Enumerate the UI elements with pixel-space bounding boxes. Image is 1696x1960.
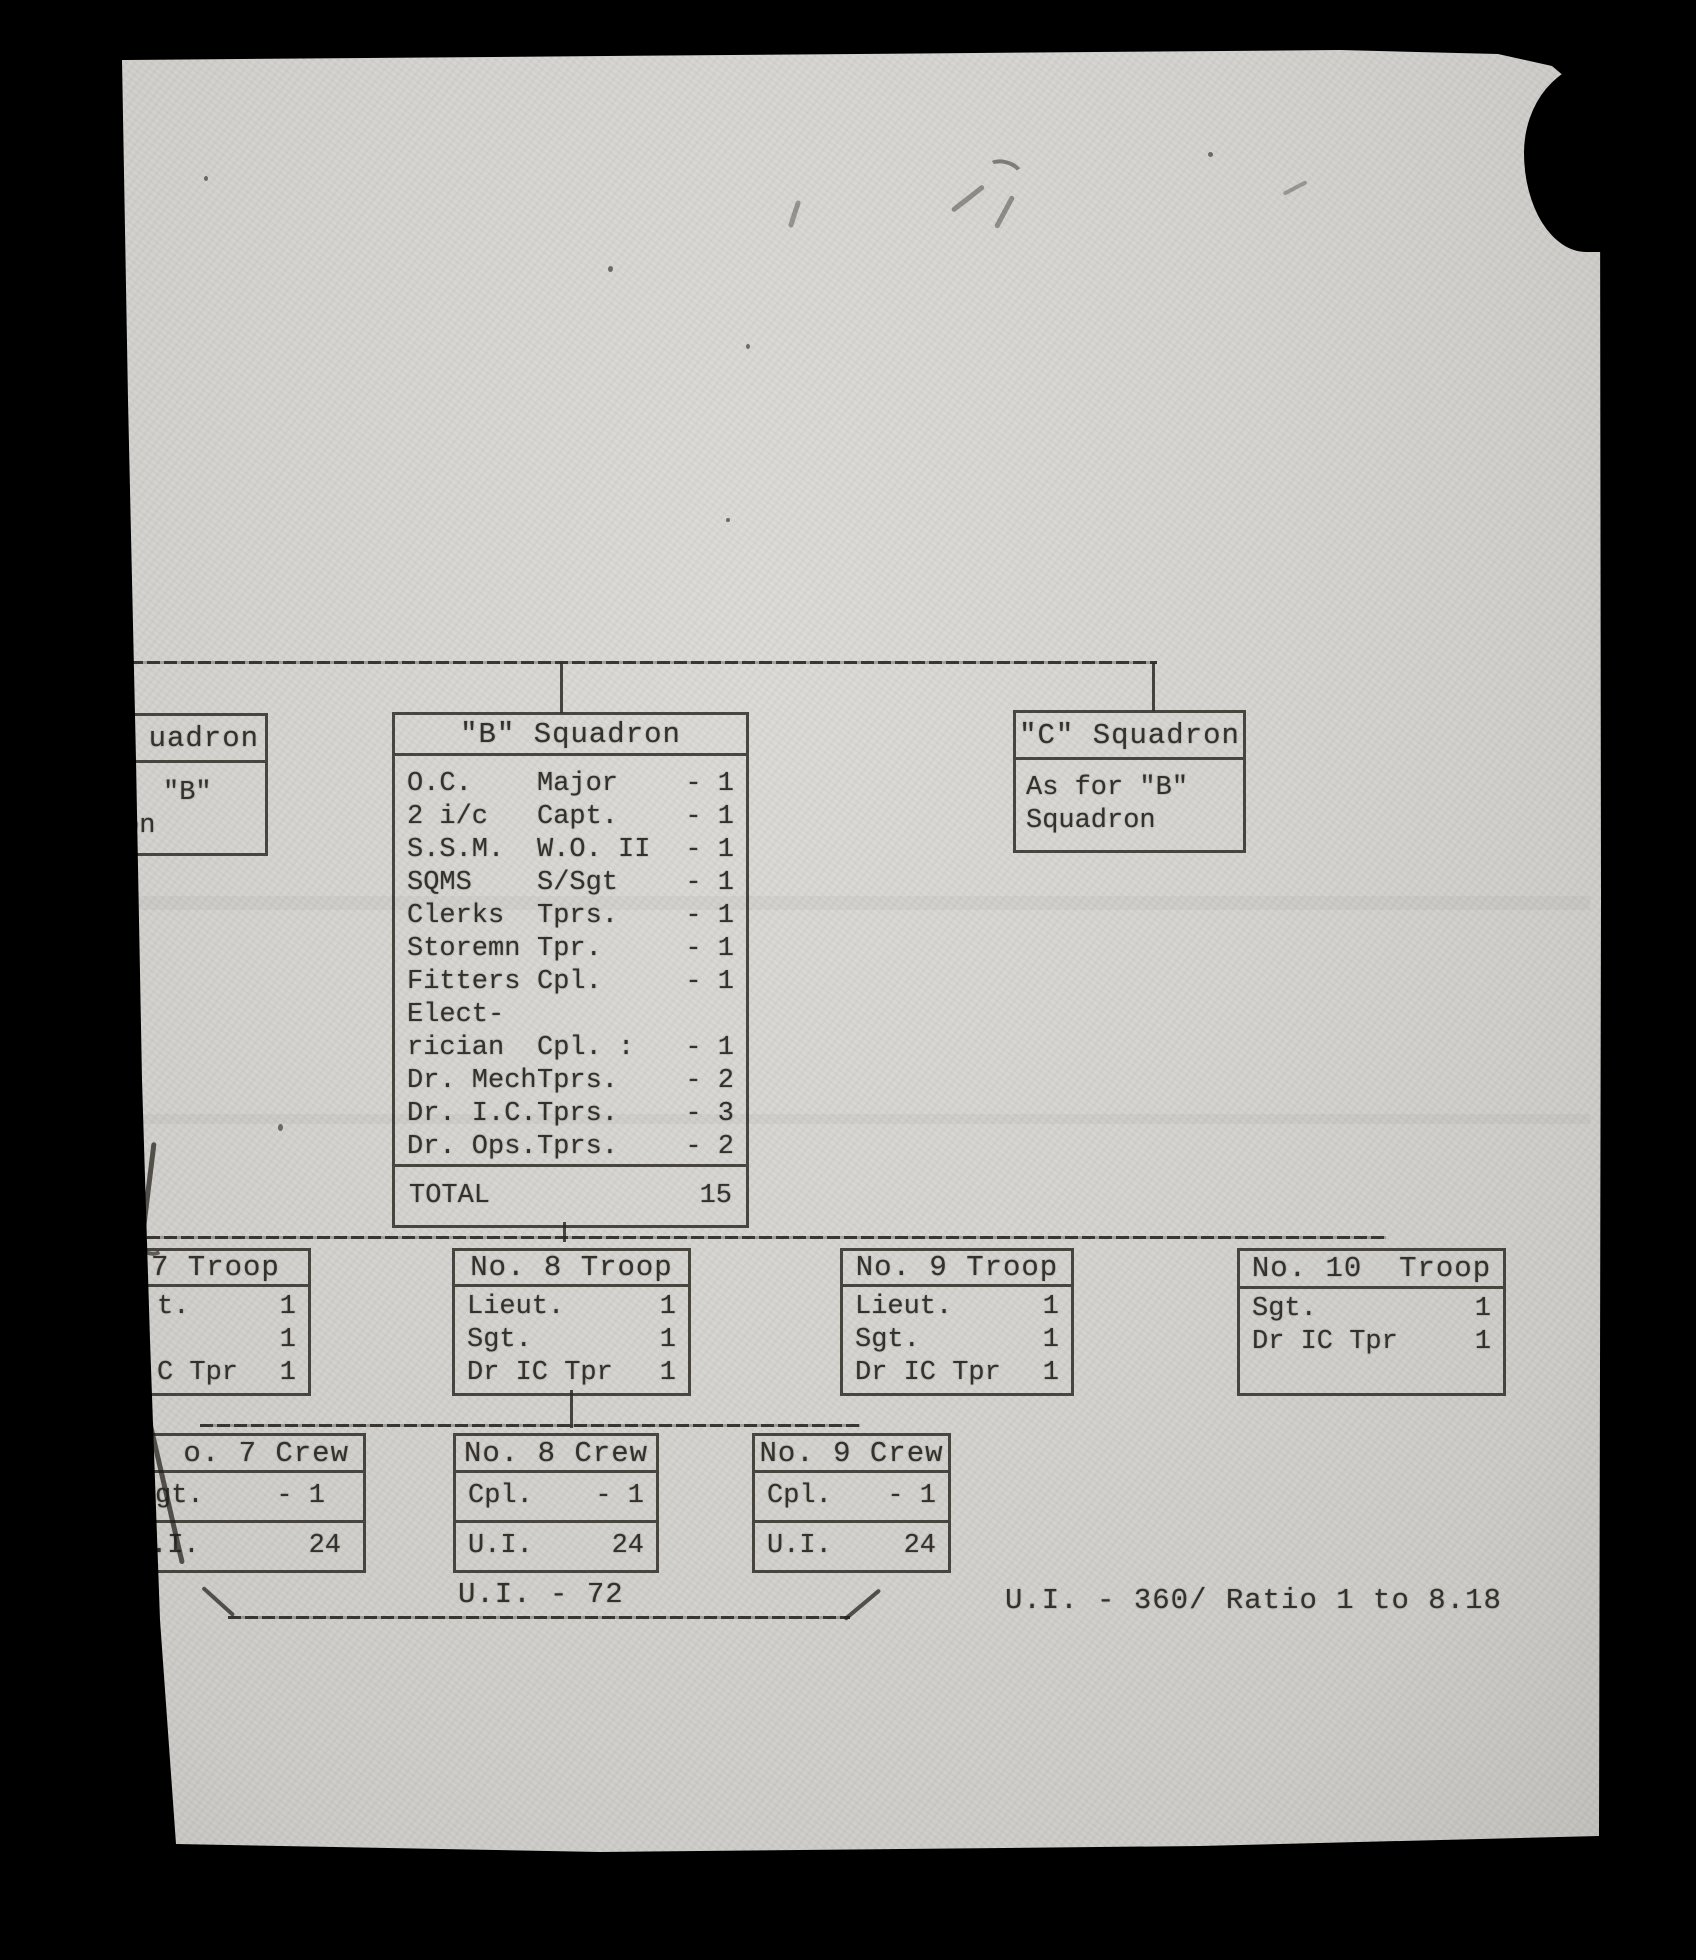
- crew-ui-row: .I. 24: [89, 1523, 363, 1570]
- personnel-row: Storemn Tpr. - 1: [395, 933, 746, 966]
- role-label: Dr. Mech: [407, 1065, 537, 1098]
- connector-top-line: [96, 661, 1157, 664]
- crew-person-count: - 1: [595, 1480, 644, 1513]
- squadron-c-title: "C" Squadron: [1019, 719, 1240, 752]
- count-value: [672, 999, 734, 1032]
- crew-person-row: gt. - 1: [89, 1473, 363, 1523]
- paper-sheet: uadron "B" on "B" Squadron O.C. Major - …: [0, 0, 1696, 1960]
- connector-troop8-to-crews: [570, 1390, 573, 1428]
- brace-left-end: [201, 1586, 235, 1617]
- rank-label: Tprs.: [537, 1065, 672, 1098]
- scanned-org-chart-page: uadron "B" on "B" Squadron O.C. Major - …: [0, 0, 1696, 1960]
- troop-role-label: t.: [157, 1291, 189, 1324]
- connector-troop-line: [96, 1236, 1386, 1239]
- squadron-b-box: "B" Squadron O.C. Major - 1 2 i/c Capt. …: [392, 712, 749, 1228]
- ink-mark: [788, 200, 801, 228]
- troop-count-value: 1: [1475, 1326, 1491, 1359]
- troop-7-box: 7 Troop t. 1 1 C Tpr 1: [86, 1248, 311, 1396]
- troop-count-value: 1: [1475, 1293, 1491, 1326]
- role-label: O.C.: [407, 768, 537, 801]
- troop-8-box: No. 8 Troop Lieut. 1 Sgt. 1 Dr IC Tpr 1: [452, 1248, 691, 1396]
- troop-role-label: Lieut.: [467, 1291, 564, 1324]
- crew-person-label: Cpl.: [767, 1480, 832, 1513]
- squadron-a-line1: "B": [89, 777, 265, 810]
- squadron-c-line1: As for "B": [1026, 772, 1243, 805]
- ink-mark: [994, 195, 1015, 229]
- crew-7-box: o. 7 Crew gt. - 1 .I. 24: [86, 1433, 366, 1573]
- troop-10-box: No. 10 Troop Sgt. 1 Dr IC Tpr 1: [1237, 1248, 1506, 1396]
- crew-person-count: - 1: [887, 1480, 936, 1513]
- troop-count-value: 1: [280, 1324, 296, 1357]
- crew-person-row: Cpl. - 1: [456, 1473, 656, 1523]
- ink-mark: [983, 155, 1026, 188]
- crew-ui-label: U.I.: [767, 1530, 832, 1563]
- squadron-a-box: uadron "B" on: [86, 713, 268, 856]
- rank-label: Tpr.: [537, 933, 672, 966]
- total-value: 15: [700, 1180, 732, 1213]
- troop-10-title: No. 10 Troop: [1252, 1252, 1491, 1285]
- troop-role-label: Sgt.: [1252, 1293, 1317, 1326]
- squadron-a-line2: on: [89, 810, 265, 843]
- squadron-c-box: "C" Squadron As for "B" Squadron: [1013, 710, 1246, 853]
- crew-total-label: U.I. - 72: [458, 1578, 624, 1611]
- ink-mark: [951, 184, 986, 213]
- troop-count-value: 1: [660, 1291, 676, 1324]
- troop-role-label: Dr IC Tpr: [855, 1357, 1001, 1390]
- squadron-b-title: "B" Squadron: [460, 718, 681, 751]
- paper-crease: [130, 896, 1590, 910]
- troop-count-value: 1: [280, 1291, 296, 1324]
- troop-row: t. 1: [89, 1291, 308, 1324]
- troop-row: Lieut. 1: [455, 1291, 688, 1324]
- troop-role-label: Dr IC Tpr: [467, 1357, 613, 1390]
- count-value: - 1: [672, 933, 734, 966]
- troop-count-value: 1: [280, 1357, 296, 1390]
- count-value: - 2: [672, 1131, 734, 1164]
- personnel-row: rician Cpl. : - 1: [395, 1032, 746, 1065]
- total-label: TOTAL: [409, 1180, 490, 1213]
- rank-label: Cpl.: [537, 966, 672, 999]
- troop-row: Dr IC Tpr 1: [843, 1357, 1071, 1390]
- crew-9-title: No. 9 Crew: [759, 1437, 943, 1470]
- personnel-row: Dr. Mech Tprs. - 2: [395, 1065, 746, 1098]
- rank-label: Cpl. :: [537, 1032, 672, 1065]
- squadron-b-total-row: TOTAL 15: [395, 1164, 746, 1225]
- role-label: Dr. Ops.: [407, 1131, 537, 1164]
- role-label: 2 i/c: [407, 801, 537, 834]
- troop-row: Sgt. 1: [455, 1324, 688, 1357]
- rank-label: Tprs.: [537, 1131, 672, 1164]
- count-value: - 2: [672, 1065, 734, 1098]
- personnel-row: 2 i/c Capt. - 1: [395, 801, 746, 834]
- scan-speck: [608, 266, 613, 272]
- squadron-c-line2: Squadron: [1026, 805, 1243, 838]
- personnel-row: S.S.M. W.O. II - 1: [395, 834, 746, 867]
- scan-speck: [726, 518, 730, 522]
- scan-speck: [1208, 152, 1213, 157]
- brace-right-end: [843, 1588, 881, 1621]
- troop-count-value: 1: [1043, 1291, 1059, 1324]
- scan-speck: [746, 344, 750, 349]
- brace-line: [228, 1616, 850, 1619]
- troop-8-title: No. 8 Troop: [470, 1251, 672, 1284]
- crew-8-title: No. 8 Crew: [464, 1437, 648, 1470]
- role-label: rician: [407, 1032, 537, 1065]
- troop-7-title: 7 Troop: [151, 1251, 280, 1284]
- connector-drop-c-squadron: [1152, 663, 1155, 711]
- crew-ui-row: U.I. 24: [755, 1523, 948, 1570]
- troop-role-label: Sgt.: [467, 1324, 532, 1357]
- squadron-a-title: uadron: [149, 722, 259, 755]
- troop-role-label: C Tpr: [157, 1357, 238, 1390]
- crew-ui-count: 24: [904, 1530, 936, 1563]
- rank-label: W.O. II: [537, 834, 672, 867]
- troop-row: 1: [89, 1324, 308, 1357]
- count-value: - 1: [672, 834, 734, 867]
- rank-label: Major: [537, 768, 672, 801]
- connector-crew-line: [200, 1424, 860, 1427]
- rank-label: [537, 999, 672, 1032]
- troop-count-value: 1: [660, 1357, 676, 1390]
- count-value: - 1: [672, 1032, 734, 1065]
- troop-role-label: Sgt.: [855, 1324, 920, 1357]
- count-value: - 1: [672, 768, 734, 801]
- count-value: - 1: [672, 801, 734, 834]
- rank-label: Capt.: [537, 801, 672, 834]
- crew-ui-count: 24: [309, 1530, 341, 1563]
- troop-count-value: 1: [660, 1324, 676, 1357]
- troop-count-value: 1: [1043, 1357, 1059, 1390]
- crew-9-box: No. 9 Crew Cpl. - 1 U.I. 24: [752, 1433, 951, 1573]
- connector-drop-b-squadron: [560, 663, 563, 713]
- troop-role-label: Lieut.: [855, 1291, 952, 1324]
- footnote-ratio: U.I. - 360/ Ratio 1 to 8.18: [1005, 1584, 1502, 1617]
- troop-row: Lieut. 1: [843, 1291, 1071, 1324]
- crew-person-count: - 1: [276, 1480, 325, 1513]
- role-label: Storemn: [407, 933, 537, 966]
- crew-ui-label: U.I.: [468, 1530, 533, 1563]
- troop-row: Dr IC Tpr 1: [1240, 1326, 1503, 1359]
- role-label: S.S.M.: [407, 834, 537, 867]
- squadron-b-personnel-list: O.C. Major - 1 2 i/c Capt. - 1 S.S.M. W.…: [395, 756, 746, 1164]
- crew-person-row: Cpl. - 1: [755, 1473, 948, 1523]
- troop-row: Dr IC Tpr 1: [455, 1357, 688, 1390]
- troop-9-title: No. 9 Troop: [856, 1251, 1058, 1284]
- crew-ui-row: U.I. 24: [456, 1523, 656, 1570]
- connector-b-to-troops: [563, 1222, 566, 1242]
- personnel-row: Fitters Cpl. - 1: [395, 966, 746, 999]
- troop-row: Sgt. 1: [1240, 1293, 1503, 1326]
- paper-crease: [130, 1114, 1590, 1124]
- troop-9-box: No. 9 Troop Lieut. 1 Sgt. 1 Dr IC Tpr 1: [840, 1248, 1074, 1396]
- personnel-row: O.C. Major - 1: [395, 768, 746, 801]
- crew-person-label: Cpl.: [468, 1480, 533, 1513]
- personnel-row: Elect-: [395, 999, 746, 1032]
- scan-speck: [278, 1124, 283, 1131]
- personnel-row: Dr. Ops. Tprs. - 2: [395, 1131, 746, 1164]
- role-label: Fitters: [407, 966, 537, 999]
- scan-grain-overlay: [0, 0, 1696, 1960]
- role-label: Elect-: [407, 999, 537, 1032]
- troop-row: Sgt. 1: [843, 1324, 1071, 1357]
- scan-speck: [204, 176, 208, 181]
- crew-7-title: o. 7 Crew: [183, 1437, 349, 1470]
- troop-role-label: Dr IC Tpr: [1252, 1326, 1398, 1359]
- count-value: - 1: [672, 966, 734, 999]
- crew-ui-count: 24: [612, 1530, 644, 1563]
- troop-count-value: 1: [1043, 1324, 1059, 1357]
- troop-row: C Tpr 1: [89, 1357, 308, 1390]
- ink-mark: [1283, 180, 1308, 196]
- crew-8-box: No. 8 Crew Cpl. - 1 U.I. 24: [453, 1433, 659, 1573]
